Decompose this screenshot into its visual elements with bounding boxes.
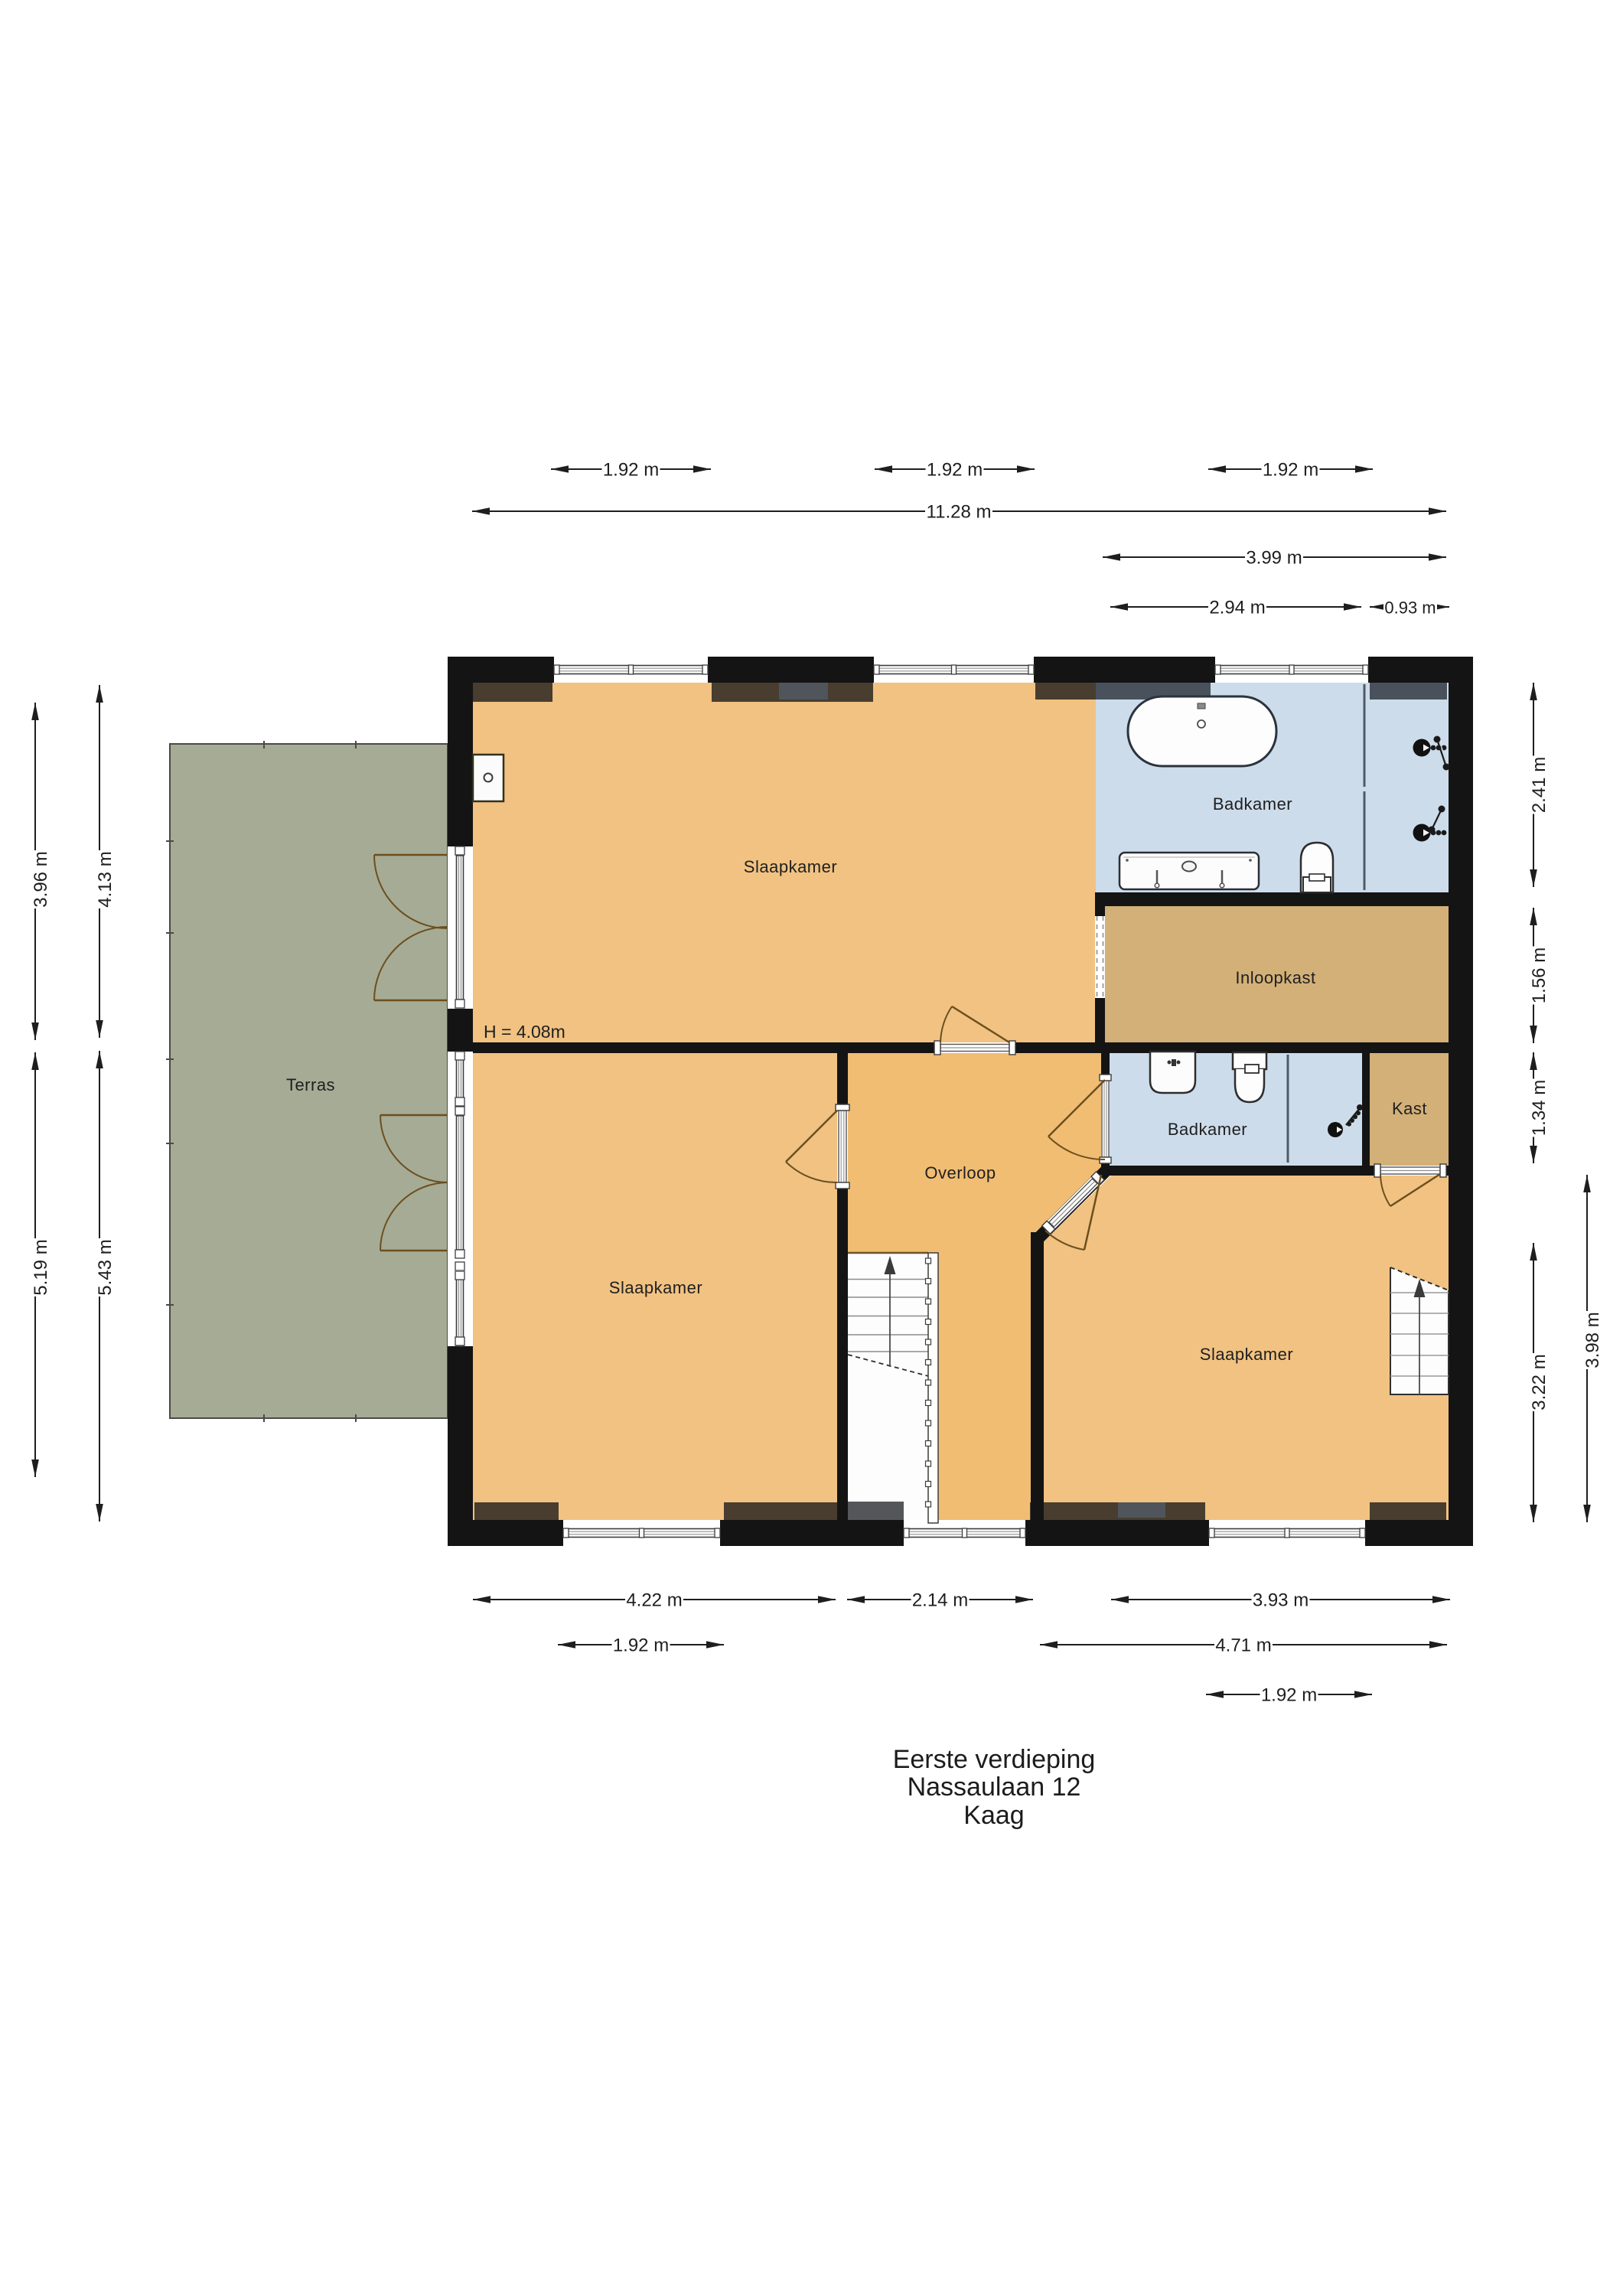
svg-text:5.43 m: 5.43 m [95, 1239, 116, 1295]
svg-text:1.92 m: 1.92 m [1261, 1685, 1317, 1706]
svg-text:Eerste verdieping: Eerste verdieping [893, 1745, 1096, 1774]
svg-text:4.22 m: 4.22 m [626, 1590, 682, 1611]
svg-text:1.34 m: 1.34 m [1529, 1080, 1550, 1136]
svg-text:11.28 m: 11.28 m [927, 502, 992, 523]
svg-text:Slaapkamer: Slaapkamer [609, 1278, 702, 1297]
svg-text:Slaapkamer: Slaapkamer [744, 857, 837, 876]
svg-text:Inloopkast: Inloopkast [1235, 968, 1315, 987]
svg-text:Kaag: Kaag [963, 1801, 1024, 1830]
svg-text:4.71 m: 4.71 m [1215, 1636, 1271, 1656]
svg-text:3.99 m: 3.99 m [1246, 548, 1302, 569]
svg-text:H = 4.08m: H = 4.08m [484, 1022, 565, 1042]
svg-text:2.94 m: 2.94 m [1209, 598, 1265, 618]
svg-text:Nassaulaan 12: Nassaulaan 12 [908, 1773, 1081, 1802]
svg-text:3.98 m: 3.98 m [1582, 1312, 1603, 1368]
svg-text:Badkamer: Badkamer [1168, 1120, 1247, 1139]
svg-text:Slaapkamer: Slaapkamer [1200, 1345, 1293, 1364]
svg-text:0.93 m: 0.93 m [1384, 598, 1436, 618]
svg-text:1.92 m: 1.92 m [1263, 460, 1318, 481]
svg-text:1.92 m: 1.92 m [927, 460, 983, 481]
svg-text:5.19 m: 5.19 m [31, 1239, 51, 1295]
svg-text:2.41 m: 2.41 m [1529, 757, 1550, 813]
svg-text:1.92 m: 1.92 m [613, 1636, 669, 1656]
svg-text:3.93 m: 3.93 m [1253, 1590, 1309, 1611]
svg-text:Terras: Terras [286, 1075, 335, 1094]
svg-text:3.96 m: 3.96 m [31, 851, 51, 907]
svg-text:Kast: Kast [1392, 1099, 1427, 1118]
svg-text:2.14 m: 2.14 m [912, 1590, 968, 1611]
svg-text:1.56 m: 1.56 m [1529, 947, 1550, 1003]
svg-text:3.22 m: 3.22 m [1529, 1354, 1550, 1410]
svg-text:Overloop: Overloop [924, 1163, 996, 1182]
svg-text:Badkamer: Badkamer [1213, 794, 1292, 814]
svg-text:1.92 m: 1.92 m [603, 460, 659, 481]
svg-text:4.13 m: 4.13 m [95, 851, 116, 907]
